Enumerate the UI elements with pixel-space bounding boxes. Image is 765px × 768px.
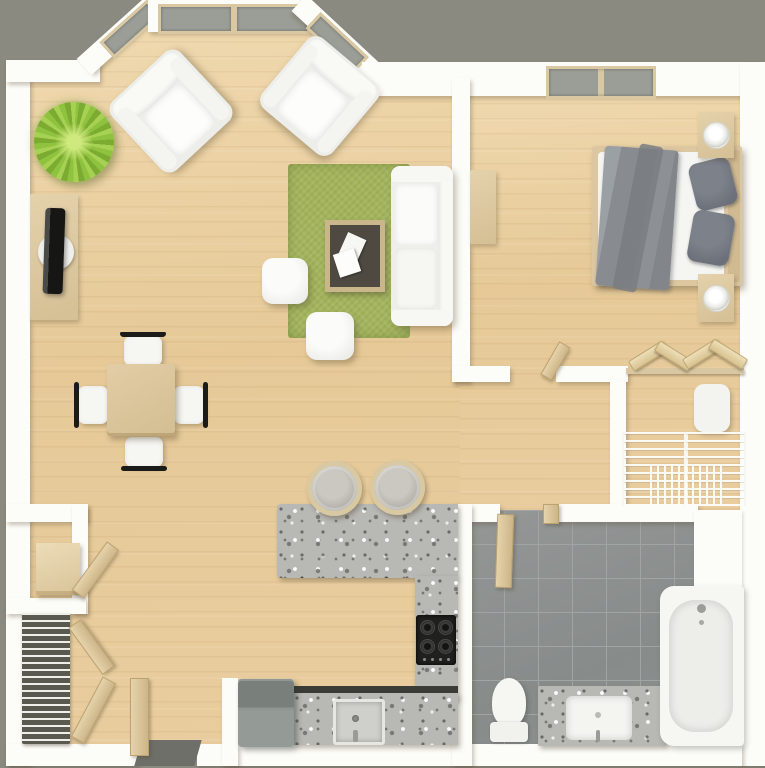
dining-chair-frame bbox=[203, 382, 208, 428]
kitchen-bar-counter bbox=[277, 504, 458, 578]
wall-entry-kitchen bbox=[222, 678, 238, 766]
cooktop bbox=[416, 615, 456, 665]
sofa-cushion bbox=[395, 184, 437, 245]
dining-chair-top bbox=[124, 336, 162, 366]
nightstand-top bbox=[698, 112, 734, 158]
potted-plant bbox=[34, 102, 114, 182]
dining-chair-frame bbox=[120, 332, 166, 337]
bar-stool-1 bbox=[307, 461, 362, 516]
vanity-faucet bbox=[596, 730, 600, 742]
sink-faucet bbox=[353, 730, 358, 742]
nightstand-bottom bbox=[698, 274, 734, 322]
bar-stool-2 bbox=[370, 460, 425, 515]
sofa-cushion bbox=[395, 248, 437, 309]
vanity-drain bbox=[595, 712, 601, 718]
dining-chair-bottom bbox=[125, 437, 163, 467]
pillow-2 bbox=[686, 209, 736, 268]
dining-table bbox=[107, 364, 175, 436]
bed bbox=[592, 146, 742, 286]
lamp bbox=[703, 122, 730, 149]
sofa bbox=[391, 166, 453, 326]
wall-bedroom-south-a bbox=[452, 366, 510, 382]
laundry-hamper bbox=[694, 384, 730, 432]
dresser bbox=[470, 170, 496, 244]
dining-chair-frame bbox=[74, 382, 79, 428]
entry-closet-wall-mid bbox=[6, 598, 86, 614]
bay-window-top-1 bbox=[158, 4, 234, 34]
bathtub-surround bbox=[694, 510, 742, 594]
sofa-armrest bbox=[391, 166, 453, 182]
ottoman-1 bbox=[262, 258, 308, 304]
dining-chair-frame bbox=[121, 466, 167, 471]
bathtub-basin bbox=[669, 600, 733, 732]
bathroom-door-leaf bbox=[495, 514, 515, 589]
bedroom-window bbox=[546, 66, 656, 99]
wall-living-bedroom bbox=[452, 78, 470, 382]
coffee-table bbox=[325, 220, 385, 292]
appliance bbox=[238, 679, 294, 747]
dining-chair-right bbox=[174, 386, 204, 424]
kitchen-sink bbox=[333, 699, 385, 745]
front-door-leaf bbox=[130, 678, 149, 756]
sofa-back bbox=[438, 166, 453, 326]
closet-hangers-right bbox=[682, 334, 746, 378]
wall-bathroom-north bbox=[556, 504, 698, 522]
sink-drain bbox=[352, 715, 359, 722]
toilet bbox=[490, 678, 530, 744]
bathtub-faucet bbox=[697, 604, 706, 613]
tv-screen bbox=[43, 208, 66, 295]
lamp bbox=[703, 285, 730, 312]
bathtub bbox=[660, 586, 744, 746]
toilet-bowl bbox=[492, 678, 526, 726]
sofa-armrest bbox=[391, 310, 453, 326]
wire-basket-front bbox=[650, 466, 722, 506]
outer-wall-bottom-left bbox=[6, 744, 138, 766]
floorplan-canvas bbox=[0, 0, 765, 768]
shoe-rack bbox=[22, 613, 70, 744]
toilet-tank bbox=[490, 722, 528, 742]
ottoman-2 bbox=[306, 312, 354, 360]
vanity-counter bbox=[538, 686, 666, 746]
bathroom-door-frame bbox=[543, 504, 559, 524]
dining-chair-left bbox=[78, 386, 108, 424]
